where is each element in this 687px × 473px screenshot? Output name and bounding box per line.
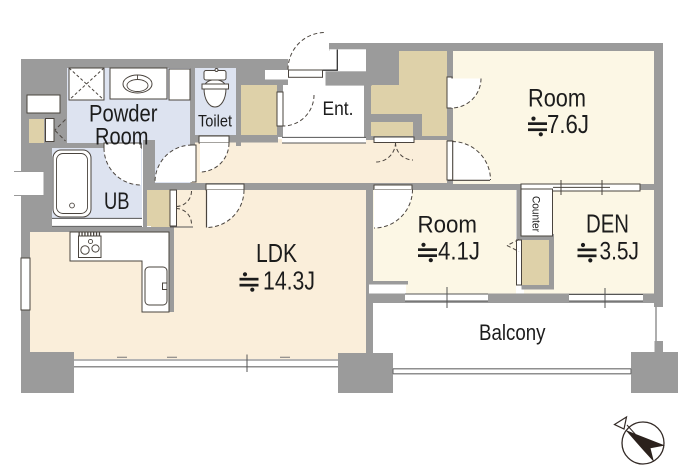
svg-text:Ent.: Ent. [323, 99, 354, 120]
svg-text:Counter: Counter [530, 196, 542, 232]
svg-text:4.1J: 4.1J [438, 238, 480, 266]
svg-text:DEN: DEN [586, 211, 629, 239]
svg-text:7.6J: 7.6J [547, 109, 589, 139]
svg-text:3.5J: 3.5J [600, 238, 640, 266]
svg-text:Toilet: Toilet [198, 112, 232, 131]
svg-text:14.3J: 14.3J [263, 266, 315, 296]
svg-text:LDK: LDK [256, 238, 298, 268]
svg-text:Room: Room [95, 124, 149, 151]
svg-text:Balcony: Balcony [479, 320, 546, 345]
svg-text:UB: UB [104, 188, 130, 215]
svg-text:Room: Room [418, 212, 478, 239]
